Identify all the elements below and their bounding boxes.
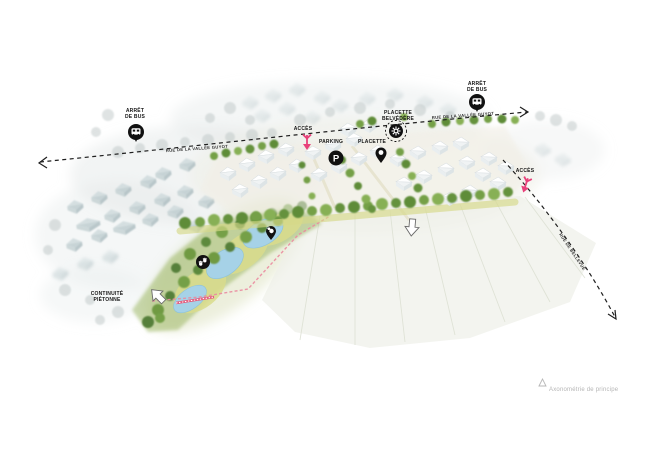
access-main-label: ACCÈS: [294, 126, 313, 132]
pedestrian-continuity-label: CONTINUITÉ PIÉTONNE: [91, 291, 124, 304]
belvedere-line2: BELVÉDÈRE: [382, 116, 414, 122]
side-road-arrow: [608, 310, 616, 319]
pedestrian-line2: PIÉTONNE: [91, 297, 124, 303]
access-east-label: ACCÈS: [516, 168, 535, 174]
north-triangle-icon: [539, 379, 546, 386]
bus-stop-west-line2: DE BUS: [125, 114, 145, 120]
belvedere-label: PLACETTE BELVÉDÈRE: [382, 110, 414, 123]
bus-stop-west-label: ARRÊT DE BUS: [125, 108, 145, 121]
masterplan-axonometric-diagram: P: [0, 0, 650, 460]
parking-icon: P: [329, 151, 344, 166]
svg-text:P: P: [333, 153, 340, 164]
bus-stop-east-label: ARRÊT DE BUS: [467, 81, 487, 94]
diagram-caption: Axonométrie de principe: [549, 387, 618, 394]
bus-stop-east-line2: DE BUS: [467, 87, 487, 93]
animal-tracks-icon: [196, 255, 210, 269]
parking-label: PARKING: [319, 139, 343, 145]
main-road-arrow-west: [39, 157, 47, 168]
placette-label: PLACETTE: [358, 139, 386, 145]
